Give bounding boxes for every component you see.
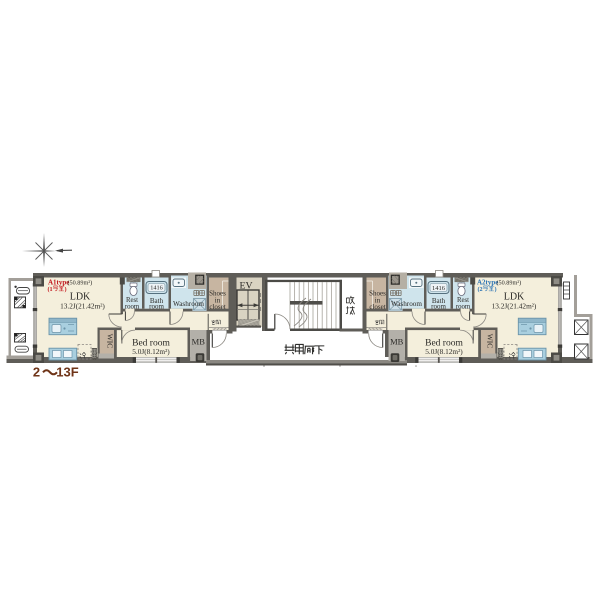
svg-text:13.2J(21.42m²): 13.2J(21.42m²)	[60, 302, 105, 311]
svg-text:MB: MB	[390, 337, 404, 347]
svg-text:Washroom: Washroom	[391, 300, 422, 308]
svg-text:room: room	[431, 302, 446, 310]
svg-text:room: room	[456, 303, 471, 310]
svg-text:(1: (1	[48, 286, 53, 293]
svg-text:(50.89m²): (50.89m²)	[68, 280, 93, 287]
svg-text:WIC: WIC	[485, 334, 494, 349]
svg-text:Washroom: Washroom	[173, 300, 204, 308]
svg-text:room: room	[149, 302, 164, 310]
svg-text:): )	[65, 286, 67, 293]
svg-text:WIC: WIC	[106, 334, 115, 349]
svg-text:MB: MB	[192, 337, 206, 347]
svg-text:1416: 1416	[432, 285, 446, 292]
svg-text:room: room	[125, 303, 140, 310]
svg-text:closet: closet	[209, 303, 225, 311]
svg-text:2: 2	[33, 365, 40, 380]
svg-text:(2: (2	[478, 286, 483, 293]
svg-text:1416: 1416	[150, 285, 163, 292]
svg-text:5.0J(8.12m²): 5.0J(8.12m²)	[425, 347, 463, 356]
svg-text:13.2J(21.42m²): 13.2J(21.42m²)	[492, 302, 537, 311]
svg-text:5.0J(8.12m²): 5.0J(8.12m²)	[132, 347, 170, 356]
svg-text:closet: closet	[369, 303, 385, 311]
svg-text:13F: 13F	[56, 365, 78, 380]
svg-text:(50.89m²): (50.89m²)	[497, 280, 522, 287]
svg-text:): )	[495, 286, 497, 293]
